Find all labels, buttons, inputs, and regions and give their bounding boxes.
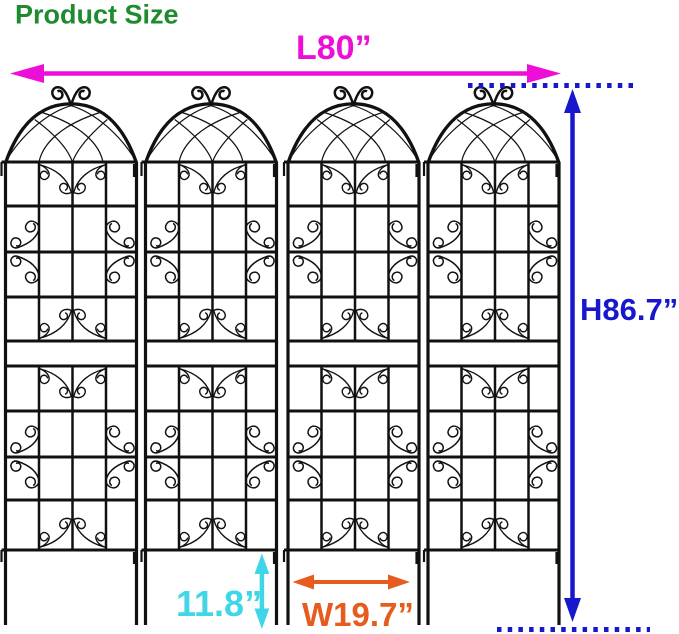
svg-text:W19.7”: W19.7” [302, 596, 414, 633]
svg-text:L80”: L80” [296, 29, 372, 67]
svg-text:Product Size: Product Size [15, 0, 179, 30]
svg-text:11.8”: 11.8” [176, 583, 262, 624]
svg-text:H86.7”: H86.7” [580, 292, 678, 327]
